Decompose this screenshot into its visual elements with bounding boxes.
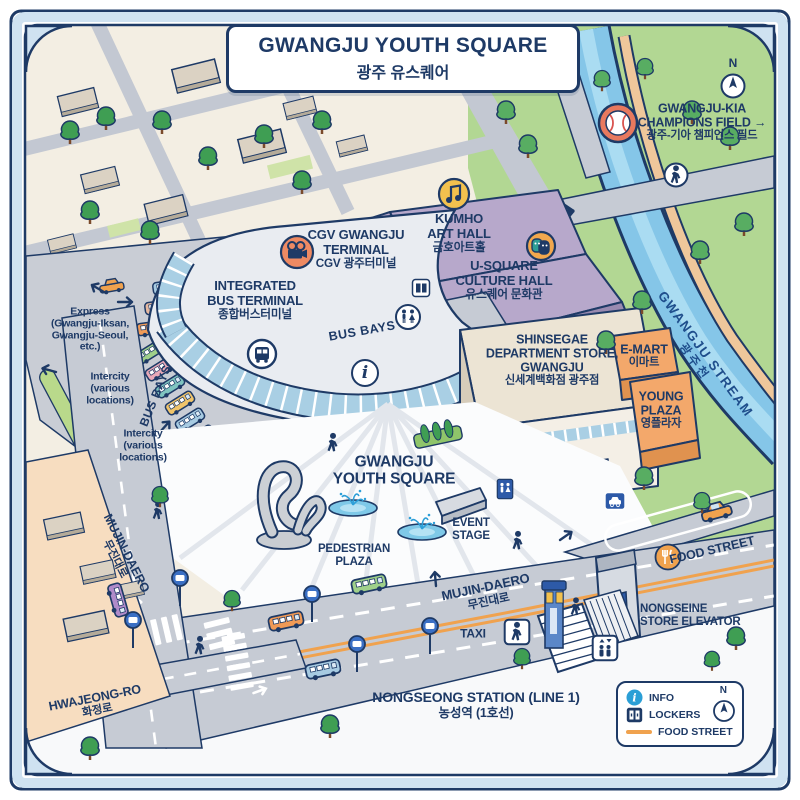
- terminal-label: INTEGRATEDBUS TERMINAL 종합버스터미널: [207, 279, 303, 321]
- legend-compass-icon: [712, 699, 736, 728]
- taxi-label: TAXI: [460, 627, 486, 640]
- food-street-legend-icon: [626, 729, 652, 735]
- bus-icon: [246, 338, 278, 370]
- emart-label: E-MART 이마트: [620, 343, 667, 370]
- express-label: Express(Gwangju-Iksan, Gwangju-Seoul,etc…: [51, 307, 129, 354]
- music-note-icon: [437, 177, 471, 211]
- kumho-label: KUMHOART HALL 금호아트홀: [427, 212, 490, 254]
- elevator-icon: [592, 635, 619, 662]
- champions-field-label: GWANGJU-KIA CHAMPIONS FIELD → 광주-기아 챔피언스…: [638, 102, 767, 143]
- legend-north-label: N: [720, 685, 727, 696]
- restroom-sign-icon: [497, 479, 514, 500]
- store-elevator-label: NONGSEINESTORE ELEVATOR: [640, 603, 741, 629]
- intercity-label-1: Intercity(various locations): [86, 371, 134, 406]
- pedestrian-crossing-sign-icon: [504, 619, 531, 646]
- lockers-icon: [412, 279, 431, 298]
- lockers-legend-icon: [626, 707, 643, 723]
- parking-car-sign-icon: [604, 492, 626, 511]
- info-icon: i: [351, 359, 379, 387]
- info-legend-icon: i: [626, 689, 643, 706]
- event-stage-label: EVENTSTAGE: [452, 517, 490, 543]
- legend: i INFO LOCKERS FOOD STREET N: [616, 681, 744, 747]
- pedestrian-crossing-circle-icon: [663, 162, 690, 189]
- restroom-icon: [394, 303, 422, 331]
- page-title-korean: 광주 유스퀘어: [357, 59, 450, 83]
- intercity-label-2: Intercity(various locations): [119, 428, 167, 463]
- cgv-label: CGV GWANGJUTERMINAL CGV 광주터미널: [308, 228, 405, 270]
- shinsegae-label: SHINSEGAEDEPARTMENT STORE, GWANGJU 신세계백화…: [486, 333, 618, 388]
- young-plaza-label: YOUNGPLAZA 영플라자: [639, 390, 684, 431]
- legend-lockers-label: LOCKERS: [649, 709, 700, 721]
- north-label: N: [729, 56, 738, 70]
- page-title: GWANGJU YOUTH SQUARE: [258, 34, 547, 58]
- legend-info-label: INFO: [649, 692, 674, 704]
- compass-icon: [719, 72, 747, 100]
- youth-square-label: GWANGJUYOUTH SQUARE: [333, 454, 455, 489]
- svg-text:i: i: [632, 692, 636, 705]
- map-canvas: N: [0, 0, 800, 800]
- pedestrian-plaza-label: PEDESTRIANPLAZA: [318, 543, 390, 569]
- station-label: NONGSEONG STATION (LINE 1) 농성역 (1호선): [372, 690, 579, 720]
- title-banner: GWANGJU YOUTH SQUARE 광주 유스퀘어: [226, 24, 580, 93]
- baseball-icon: [597, 102, 639, 144]
- usquare-hall-label: U-SQUARECULTURE HALL 유스퀘어 문화관: [455, 259, 552, 301]
